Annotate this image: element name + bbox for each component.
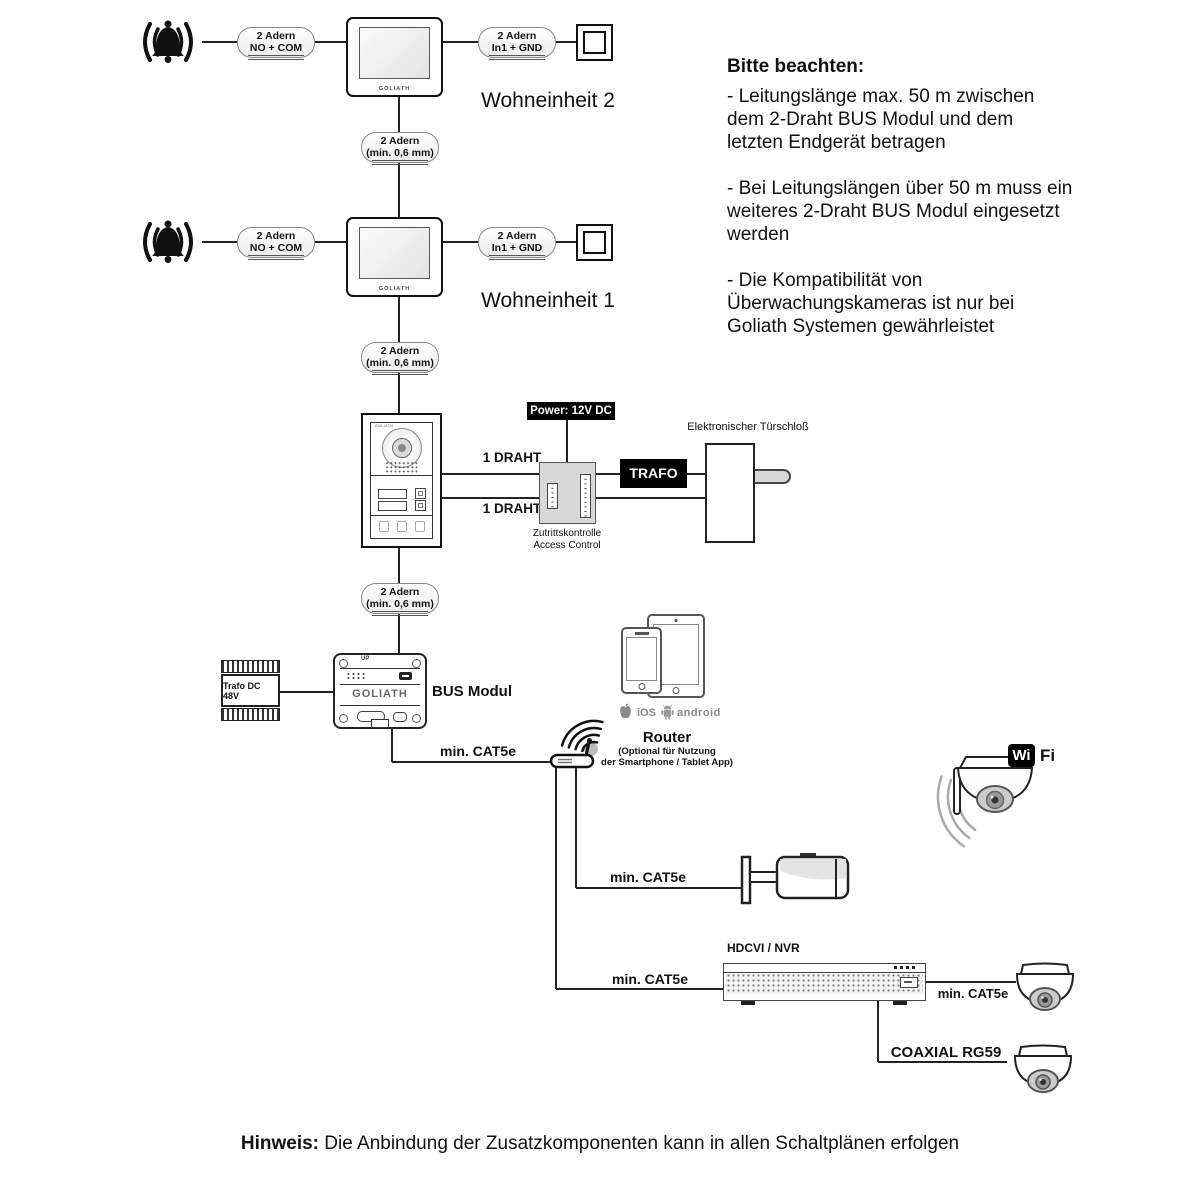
cat5e-label: min. CAT5e	[612, 971, 688, 987]
power-label: Power: 12V DC	[527, 402, 615, 420]
pill-underline	[248, 255, 304, 260]
pill-line1: 2 Adern	[362, 587, 438, 599]
terminal-row	[221, 660, 280, 673]
door-button-inner	[583, 231, 606, 254]
call-button-dot	[418, 503, 423, 508]
pill-underline	[248, 55, 304, 60]
nvr-label: HDCVI / NVR	[727, 941, 800, 955]
wire-label-2adern: 2 Adern (min. 0,6 mm)	[361, 583, 439, 614]
brand-label: GOLIATH	[348, 286, 441, 292]
pill-underline	[489, 55, 545, 60]
cat5e-label: min. CAT5e	[610, 869, 686, 885]
lock-label: Elektronischer Türschloß	[668, 421, 828, 433]
wire-label-in1-gnd: 2 Adern In1 + GND	[478, 227, 556, 258]
electronic-door-lock	[705, 443, 755, 543]
unit-2-label: Wohneinheit 2	[481, 89, 615, 113]
screw-icon	[412, 659, 421, 668]
door-station-button-section	[371, 485, 432, 516]
divider	[340, 705, 420, 706]
pill-underline	[489, 255, 545, 260]
note-item: - Bei Leitungslängen über 50 m muss ein …	[727, 177, 1197, 246]
pill-line1: 2 Adern	[362, 346, 438, 358]
doorbell-icon	[145, 221, 191, 264]
pill-line2: (min. 0,6 mm)	[362, 148, 438, 160]
brand-label: GOLIATH	[335, 688, 425, 700]
dome-camera-icon	[1015, 1046, 1071, 1093]
note-item: - Die Kompatibilität von Überwachungskam…	[727, 269, 1197, 338]
monitor-screen	[359, 27, 430, 79]
connector-port	[393, 712, 407, 722]
pill-line1: 2 Adern	[238, 31, 314, 43]
camera-ring	[392, 438, 412, 458]
indoor-monitor: GOLIATH	[346, 217, 443, 297]
dome-camera-icon	[1017, 964, 1073, 1011]
pill-line2: NO + COM	[238, 243, 314, 255]
notes-block: Bitte beachten: - Leitungslänge max. 50 …	[727, 55, 1197, 361]
nvr-led	[906, 966, 909, 969]
door-station-camera-section	[371, 423, 432, 476]
caption-en: Access Control	[512, 540, 622, 552]
pill-line1: 2 Adern	[479, 231, 555, 243]
pill-underline	[372, 611, 428, 616]
smartphone-icon	[621, 627, 662, 694]
call-button	[415, 500, 426, 511]
footer-note: Hinweis: Die Anbindung der Zusatzkompone…	[0, 1133, 1200, 1155]
door-button-inner	[583, 31, 606, 54]
wire-label-2adern: 2 Adern (min. 0,6 mm)	[361, 132, 439, 163]
pill-line1: 2 Adern	[362, 136, 438, 148]
draht-label: 1 DRAHT	[483, 501, 542, 516]
router-subtitle: der Smartphone / Tablet App)	[601, 757, 733, 768]
door-station-icon-row	[371, 515, 432, 538]
wire-label-2adern: 2 Adern (min. 0,6 mm)	[361, 342, 439, 373]
speaker-grill-icon	[385, 461, 419, 473]
wifi-logo-wi: Wi	[1008, 744, 1035, 767]
connector-port	[399, 672, 412, 680]
screw-icon	[412, 714, 421, 723]
pill-line2: NO + COM	[238, 43, 314, 55]
bus-module: UP GOLIATH	[333, 653, 427, 729]
phone-screen	[626, 637, 657, 681]
screw-icon	[339, 659, 348, 668]
call-button	[415, 488, 426, 499]
bus-module-label: BUS Modul	[432, 683, 512, 700]
door-station-panel: GOLIATH	[370, 422, 433, 539]
nvr-led	[912, 966, 915, 969]
trafo-box: TRAFO	[620, 459, 687, 488]
name-plate	[378, 501, 407, 511]
pill-line2: In1 + GND	[479, 43, 555, 55]
router-icon	[551, 721, 603, 767]
terminal-strip	[547, 483, 558, 509]
doorbell-icon	[145, 21, 191, 64]
router-subtitle: (Optional für Nutzung	[618, 746, 716, 757]
name-plate	[378, 489, 407, 499]
bullet-camera-icon	[742, 853, 848, 903]
door-button-icon	[576, 224, 613, 261]
up-marking: UP	[361, 656, 369, 662]
wifi-logo-fi: Fi	[1040, 746, 1055, 766]
footer-note-text: Die Anbindung der Zusatzkomponenten kann…	[319, 1133, 959, 1154]
cat5e-label: min. CAT5e	[938, 986, 1009, 1001]
brand-label: GOLIATH	[348, 86, 441, 92]
call-button-dot	[418, 491, 423, 496]
wire-label-in1-gnd: 2 Adern In1 + GND	[478, 27, 556, 58]
caption-de: Zutrittskontrolle	[512, 528, 622, 540]
nvr-vent-mesh	[726, 973, 923, 994]
pill-underline	[372, 160, 428, 165]
android-icon	[660, 703, 675, 720]
notes-title: Bitte beachten:	[727, 55, 1197, 78]
pill-line1: 2 Adern	[479, 31, 555, 43]
camera-pupil	[398, 444, 406, 452]
access-control-unit	[539, 462, 596, 524]
terminal-strip	[580, 474, 591, 518]
nvr-led	[900, 966, 903, 969]
access-control-caption: Zutrittskontrolle Access Control	[512, 528, 622, 552]
indoor-monitor: GOLIATH	[346, 17, 443, 97]
note-item: - Leitungslänge max. 50 m zwischen dem 2…	[727, 85, 1197, 154]
door-station-touch-icon	[397, 521, 407, 532]
door-station-touch-icon	[379, 521, 389, 532]
pill-line2: In1 + GND	[479, 243, 555, 255]
bus-terminal-strip	[340, 668, 420, 685]
cat5e-label: min. CAT5e	[440, 743, 516, 759]
pill-line2: (min. 0,6 mm)	[362, 358, 438, 370]
door-station-touch-icon	[415, 521, 425, 532]
wifi-camera-icon	[938, 757, 1032, 846]
nvr-led	[894, 966, 897, 969]
terminal-dots	[346, 672, 366, 680]
tablet-camera-dot	[675, 619, 678, 622]
nvr-top-strip	[724, 964, 925, 973]
terminal-row	[221, 708, 280, 721]
screw-icon	[339, 714, 348, 723]
trafo-dc48v: Trafo DC 48V	[221, 660, 280, 728]
android-label: android	[677, 707, 721, 719]
pill-line2: (min. 0,6 mm)	[362, 599, 438, 611]
ios-label: iOS	[637, 707, 656, 719]
wire-label-no-com: 2 Adern NO + COM	[237, 227, 315, 258]
pill-underline	[372, 370, 428, 375]
footer-note-bold: Hinweis:	[241, 1133, 319, 1154]
nvr-usb-port	[900, 977, 918, 988]
nvr-foot	[741, 1001, 755, 1005]
nvr-recorder	[723, 963, 926, 1001]
wiring-diagram: 2 Adern NO + COM GOLIATH 2 Adern In1 + G…	[0, 0, 1200, 1200]
nvr-foot	[893, 1001, 907, 1005]
tablet-home-button	[673, 687, 680, 694]
wire-label-no-com: 2 Adern NO + COM	[237, 27, 315, 58]
trafo48-label: Trafo DC 48V	[221, 674, 280, 707]
pill-line1: 2 Adern	[238, 231, 314, 243]
monitor-screen	[359, 227, 430, 279]
coaxial-label: COAXIAL RG59	[891, 1044, 1002, 1061]
unit-1-label: Wohneinheit 1	[481, 289, 615, 313]
draht-label: 1 DRAHT	[483, 450, 542, 465]
network-port	[371, 719, 389, 728]
phone-home-button	[638, 683, 645, 690]
door-button-icon	[576, 24, 613, 61]
door-station: GOLIATH	[361, 413, 442, 548]
phone-speaker	[635, 632, 649, 635]
router-title: Router	[643, 729, 691, 746]
apple-icon	[618, 703, 633, 720]
